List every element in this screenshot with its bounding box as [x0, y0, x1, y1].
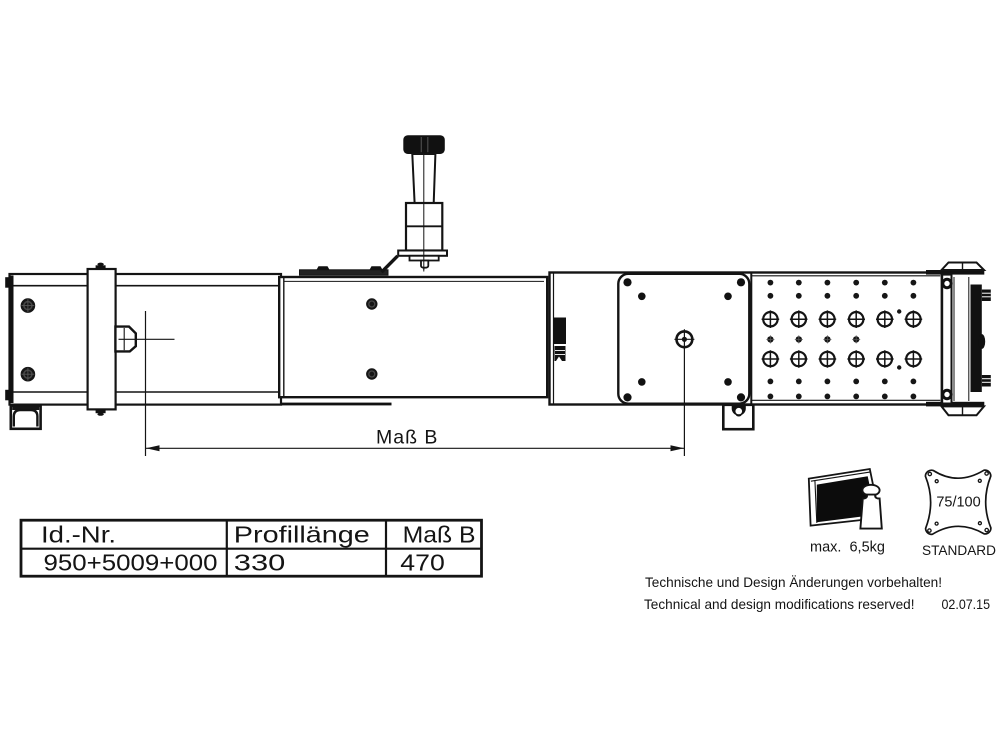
svg-text:max. 6,5kg: max. 6,5kg: [810, 540, 885, 556]
svg-text:330: 330: [234, 550, 285, 576]
svg-text:950+5009+000: 950+5009+000: [44, 550, 218, 576]
svg-text:Maß B: Maß B: [403, 522, 476, 548]
svg-text:Profillänge: Profillänge: [234, 522, 370, 548]
svg-text:75/100: 75/100: [936, 495, 980, 511]
svg-text:Technische und Design Änderung: Technische und Design Änderungen vorbeha…: [645, 575, 942, 590]
svg-text:Technical and design modificat: Technical and design modifications reser…: [644, 597, 915, 612]
svg-text:STANDARD: STANDARD: [922, 543, 996, 558]
svg-text:Id.-Nr.: Id.-Nr.: [41, 522, 116, 548]
svg-text:02.07.15: 02.07.15: [942, 597, 991, 612]
svg-text:470: 470: [400, 550, 445, 576]
svg-text:Maß B: Maß B: [376, 427, 438, 449]
